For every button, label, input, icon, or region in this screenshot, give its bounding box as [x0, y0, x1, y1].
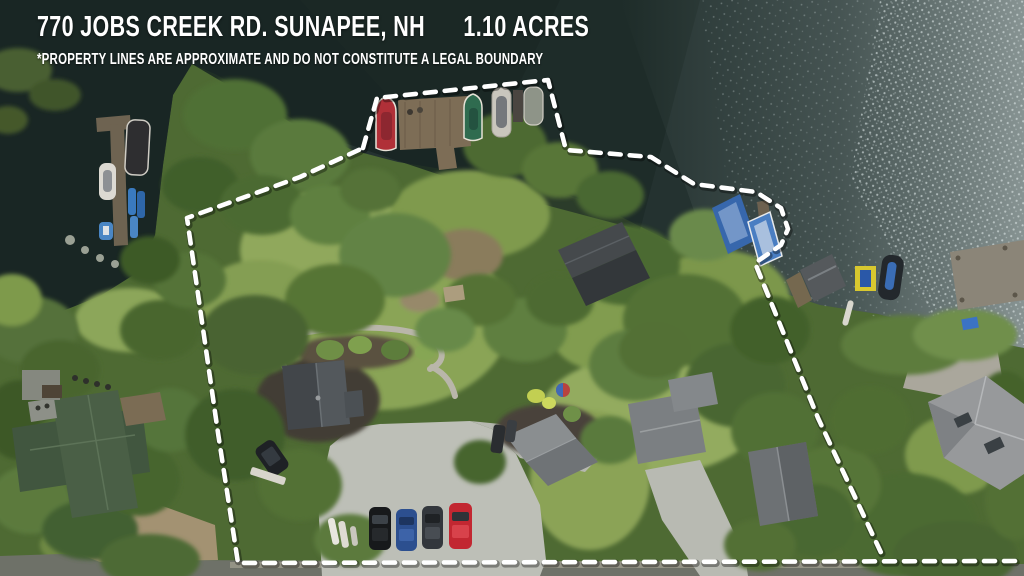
- jetski-lift: [855, 266, 876, 291]
- covered-pontoon-boat: [125, 119, 151, 175]
- cottage-four: [748, 442, 818, 526]
- picnic-table: [443, 285, 465, 303]
- dock-finger: [513, 90, 523, 122]
- acreage-text: 1.10 ACRES: [463, 11, 589, 44]
- red-car: [449, 503, 472, 549]
- gray-car: [422, 506, 443, 549]
- white-boat: [99, 163, 116, 200]
- covered-boat-gray: [524, 87, 543, 125]
- green-boat: [464, 94, 482, 141]
- listing-title: 770 JOBS CREEK RD. SUNAPEE, NH 1.10 ACRE…: [37, 11, 589, 44]
- far-right-dock: [950, 240, 1024, 310]
- aerial-scene: [0, 0, 1024, 576]
- listing-overlay: 770 JOBS CREEK RD. SUNAPEE, NH 1.10 ACRE…: [37, 11, 783, 69]
- porch: [120, 392, 166, 426]
- address-text: 770 JOBS CREEK RD. SUNAPEE, NH: [37, 11, 425, 44]
- deck: [28, 398, 57, 422]
- disclaimer-text: *PROPERTY LINES ARE APPROXIMATE AND DO N…: [37, 51, 589, 69]
- black-suv: [369, 507, 391, 550]
- blue-car: [396, 509, 417, 551]
- blue-paddle-boat: [99, 222, 113, 240]
- aerial-photo: 770 JOBS CREEK RD. SUNAPEE, NH 1.10 ACRE…: [0, 0, 1024, 576]
- covered-boat-white: [492, 88, 511, 137]
